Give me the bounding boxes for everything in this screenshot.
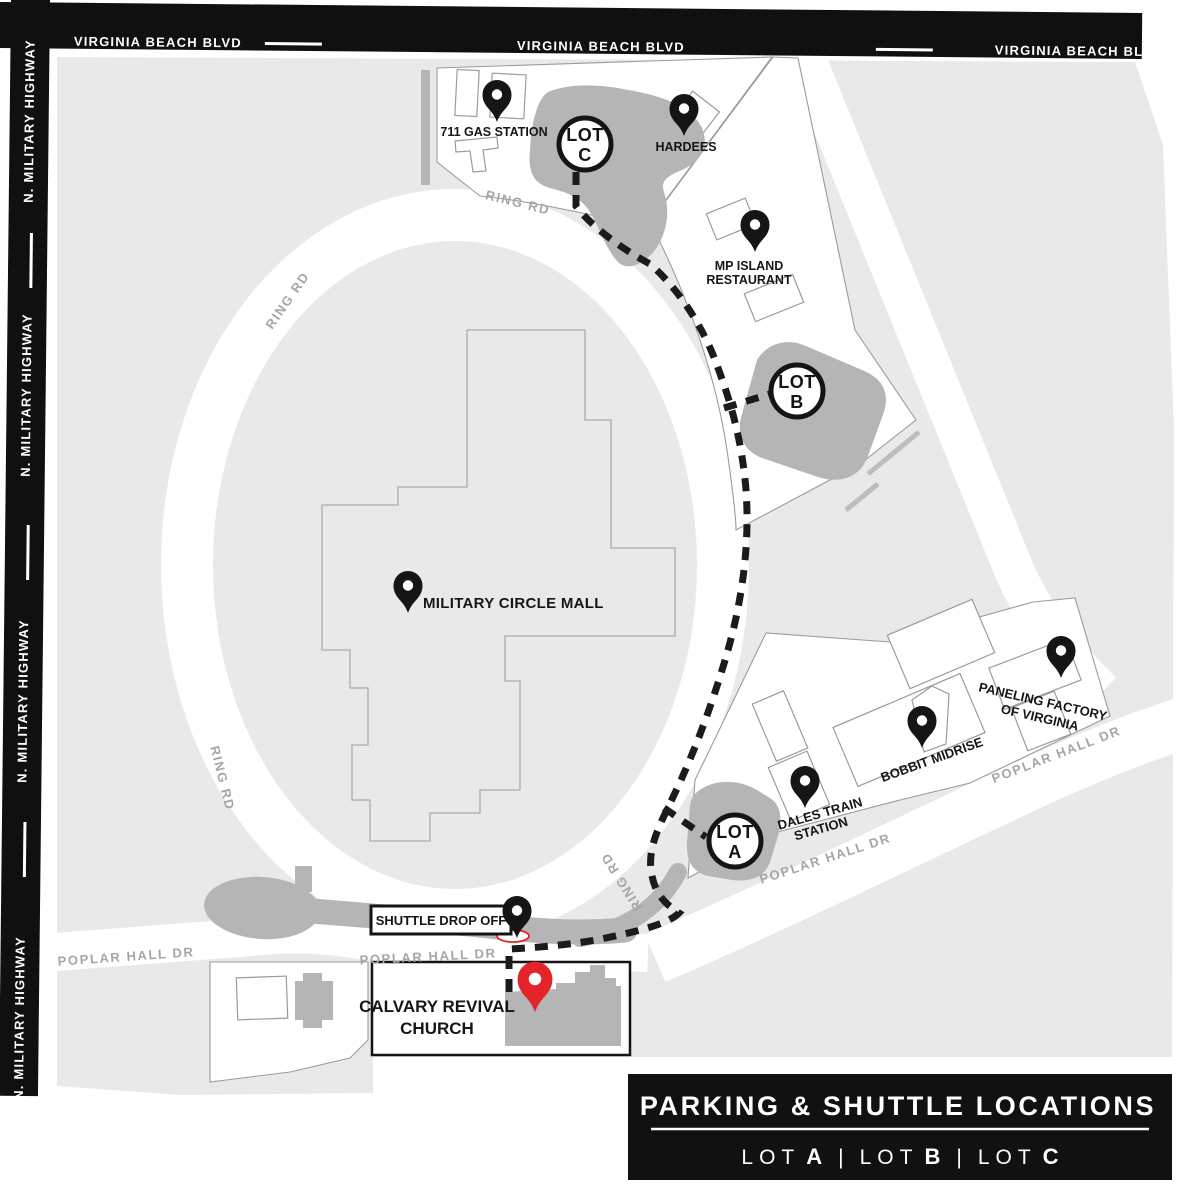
virginia-beach-blvd-bar: VIRGINIA BEACH BLVD VIRGINIA BEACH BLVD … (0, 2, 1163, 59)
lot-a-label-line1: LOT (716, 822, 754, 842)
virginia-beach-blvd-label: VIRGINIA BEACH BLVD (74, 34, 242, 51)
legend-lot-a-prefix: LOT (741, 1146, 800, 1169)
mp-island-label-line2: RESTAURANT (706, 273, 792, 287)
n-military-highway-label: N. MILITARY HIGHWAY (18, 313, 35, 477)
n-military-highway-label: N. MILITARY HIGHWAY (14, 619, 31, 783)
legend-lot-b-prefix: LOT (860, 1146, 919, 1169)
legend-separator: | (956, 1146, 961, 1169)
legend-lot-c-letter: C (1043, 1144, 1059, 1169)
lot-c-label-line2: C (578, 145, 592, 165)
building-west-cross (295, 973, 333, 1028)
lot-a-label-line2: A (728, 842, 742, 862)
n-military-highway-label: N. MILITARY HIGHWAY (11, 936, 28, 1100)
parking-shuttle-map-page: VIRGINIA BEACH BLVD VIRGINIA BEACH BLVD … (0, 0, 1200, 1200)
legend-lot-a-letter: A (806, 1144, 822, 1169)
legend-lots: LOTA|LOTB|LOTC (741, 1144, 1058, 1169)
gas-station-label: 711 GAS STATION (440, 125, 547, 139)
lot-b-label-line2: B (790, 392, 804, 412)
legend-title: PARKING & SHUTTLE LOCATIONS (640, 1091, 1156, 1121)
legend-lot-c-prefix: LOT (978, 1146, 1037, 1169)
hardees-label: HARDEES (655, 140, 716, 154)
lot-a-marker: LOT A (709, 815, 761, 867)
virginia-beach-blvd-label: VIRGINIA BEACH BLVD (995, 43, 1163, 60)
median-strip-northwest (421, 70, 430, 185)
shuttle-drop-off-label: SHUTTLE DROP OFF (376, 913, 507, 928)
church-label-line2: CHURCH (400, 1019, 474, 1038)
mp-island-label-line1: MP ISLAND (715, 259, 784, 273)
lot-c-marker: LOT C (559, 118, 611, 170)
legend: PARKING & SHUTTLE LOCATIONS LOTA|LOTB|LO… (628, 1074, 1172, 1180)
church-label-line1: CALVARY REVIVAL (359, 997, 515, 1016)
building-west-outlined (236, 976, 287, 1020)
legend-lot-b-letter: B (924, 1144, 940, 1169)
legend-separator: | (838, 1146, 843, 1169)
map-canvas: VIRGINIA BEACH BLVD VIRGINIA BEACH BLVD … (0, 0, 1200, 1200)
n-military-highway-label: N. MILITARY HIGHWAY (21, 39, 38, 203)
lot-b-marker: LOT B (771, 365, 823, 417)
median-stub-southwest (295, 866, 312, 892)
lot-b-label-line1: LOT (778, 372, 816, 392)
virginia-beach-blvd-label: VIRGINIA BEACH BLVD (517, 38, 685, 55)
lot-c-label-line1: LOT (566, 125, 604, 145)
military-circle-mall-label: MILITARY CIRCLE MALL (423, 595, 604, 612)
military-highway-bar: N. MILITARY HIGHWAY N. MILITARY HIGHWAY … (0, 0, 50, 1100)
